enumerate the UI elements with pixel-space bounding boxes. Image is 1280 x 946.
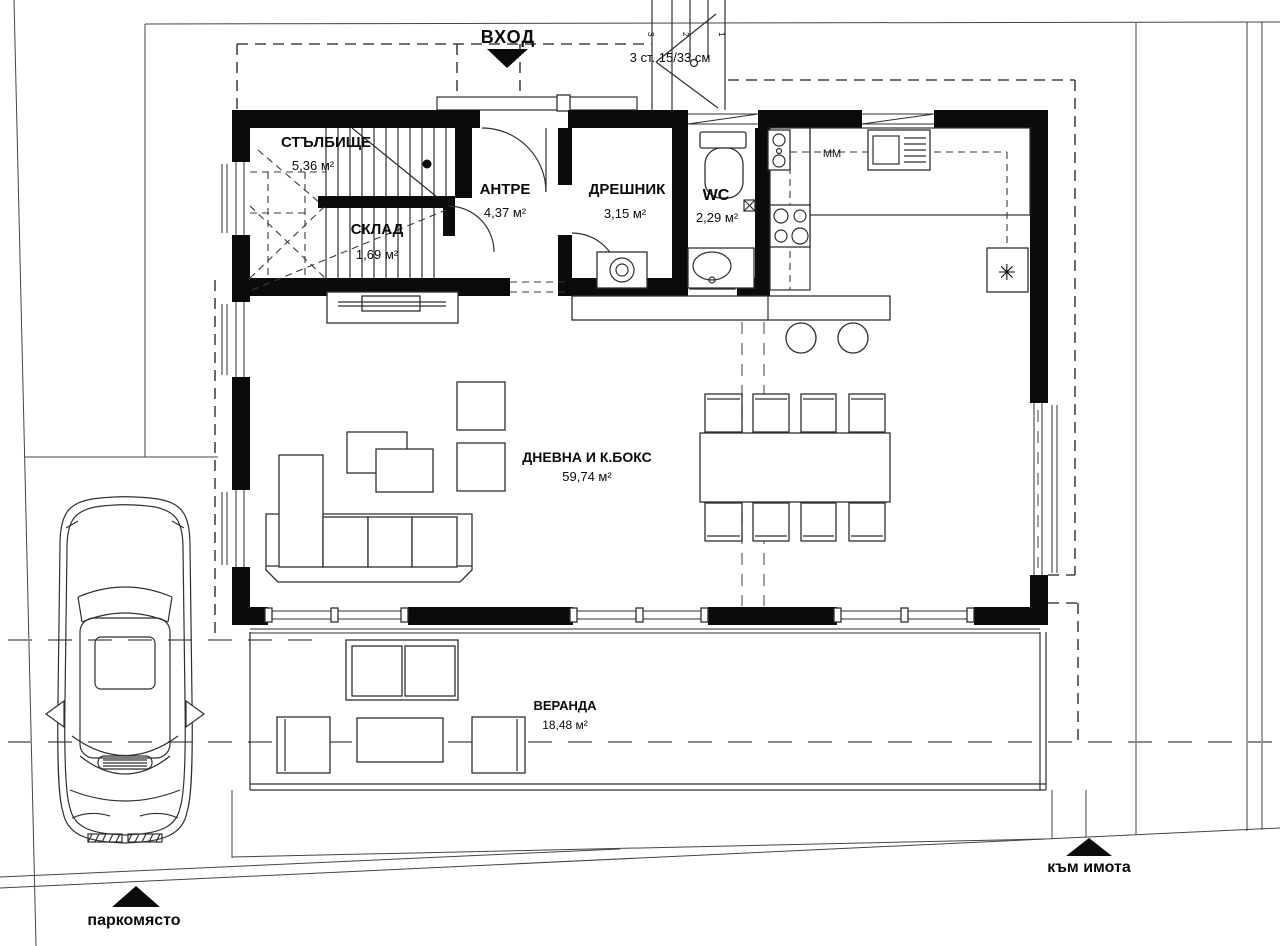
window-top-kitchen xyxy=(862,114,934,124)
wall-bottom-4 xyxy=(974,607,1048,625)
kitchen: ✳ xyxy=(572,128,1030,353)
porch-post xyxy=(557,95,570,111)
wall-bottom-3 xyxy=(708,607,837,625)
car-headlight-right xyxy=(140,813,178,818)
car xyxy=(46,497,204,843)
stair-landing-wall xyxy=(318,196,455,208)
wall-left-3 xyxy=(232,377,250,490)
room-label-veranda: ВЕРАНДА xyxy=(533,698,597,713)
setback-lines xyxy=(8,44,1272,742)
window-left-3 xyxy=(222,490,244,567)
room-label-closet: ДРЕШНИК xyxy=(589,181,666,198)
dining-chair xyxy=(849,503,885,541)
wall-bottom-1 xyxy=(232,607,268,625)
car-windshield-1 xyxy=(72,736,178,756)
dining-set xyxy=(700,394,890,541)
wall-hall-closet-bottom xyxy=(558,235,572,296)
room-area-staircase: 5,36 м² xyxy=(292,158,335,173)
room-label-wc: WC xyxy=(703,187,730,204)
window-bottom-2 xyxy=(570,608,708,622)
wall-right-1 xyxy=(1030,110,1048,403)
room-area-closet: 3,15 м² xyxy=(604,206,647,221)
entrance-arrow-icon xyxy=(487,49,528,68)
car-headlight-left xyxy=(72,813,110,818)
bar-stool xyxy=(786,323,816,353)
window-bottom-3 xyxy=(834,608,974,622)
veranda-armchair xyxy=(472,717,525,773)
parking-label: паркомясто xyxy=(87,912,180,929)
stair-door-jamb xyxy=(443,208,455,236)
room-area-hallway: 4,37 м² xyxy=(484,205,527,220)
appliance-mm-label: ММ xyxy=(823,148,841,160)
bar-stool xyxy=(838,323,868,353)
to-property-arrow-icon xyxy=(1066,838,1112,856)
fridge-symbol: ✳ xyxy=(998,260,1016,285)
car-sunroof xyxy=(95,637,155,689)
stair-dashed-guides xyxy=(250,150,446,290)
site-line-top xyxy=(145,22,1280,24)
toilet-tank xyxy=(700,132,746,148)
room-area-living: 59,74 м² xyxy=(562,469,612,484)
floor-plan-canvas: ✳ xyxy=(0,0,1280,946)
dining-chair xyxy=(705,503,742,541)
parking-arrow-icon xyxy=(112,886,160,907)
entrance-label: ВХОД xyxy=(481,27,535,47)
wall-top-1 xyxy=(232,110,480,128)
dining-chair xyxy=(801,394,836,432)
step-digit: 1 xyxy=(717,32,726,37)
pouf xyxy=(457,382,505,430)
wall-stair-hall xyxy=(455,128,472,198)
wall-bottom-2 xyxy=(408,607,573,625)
kitchen-peninsula xyxy=(572,296,890,320)
car-mirror-left xyxy=(46,701,64,727)
wall-top-2 xyxy=(568,110,688,128)
coffee-table xyxy=(376,449,433,492)
dining-chair xyxy=(849,394,885,432)
boiler-unit xyxy=(768,130,790,170)
vent-symbol xyxy=(744,200,755,211)
window-left-2 xyxy=(222,302,244,377)
window-top-wc xyxy=(688,114,758,124)
veranda-armchair xyxy=(277,717,330,773)
room-label-staircase: СТЪЛБИЩЕ xyxy=(281,134,371,151)
room-label-storage: СКЛАД xyxy=(351,221,404,238)
property-line-bottom xyxy=(0,828,1280,888)
car-hood-line xyxy=(70,790,180,801)
floor-plan-drawing: ✳ xyxy=(0,0,1280,946)
room-label-living: ДНЕВНА И К.БОКС xyxy=(522,449,651,465)
stair-direction-dot xyxy=(423,160,432,169)
stair-treads-lower xyxy=(326,208,434,278)
pouf xyxy=(457,443,505,491)
wall-closet-wc xyxy=(672,128,688,296)
dining-chair xyxy=(801,503,836,541)
tv-console xyxy=(327,292,458,323)
car-body-inner xyxy=(65,505,186,835)
steps-note: 3 ст. 15/33 см xyxy=(630,50,711,65)
veranda xyxy=(232,632,1086,858)
wall-hall-closet-top xyxy=(558,128,572,185)
window-left-1 xyxy=(222,162,244,235)
porch-slab xyxy=(437,97,637,110)
staircase xyxy=(250,128,446,290)
room-area-wc: 2,29 м² xyxy=(696,210,739,225)
veranda-table xyxy=(357,718,443,762)
to-property-label: към имота xyxy=(1047,859,1131,876)
closet-fixtures xyxy=(597,252,647,288)
wall-top-3 xyxy=(758,110,862,128)
step-digit: 3 xyxy=(646,32,655,37)
window-bottom-1 xyxy=(265,608,408,622)
car-rear-window-1 xyxy=(78,587,172,597)
patio-outline xyxy=(232,790,1086,858)
step-digit: 2 xyxy=(681,32,690,37)
fridge: ✳ xyxy=(987,248,1028,292)
exterior-steps-diagonal-2 xyxy=(656,62,718,108)
dining-chair xyxy=(753,503,789,541)
sofa xyxy=(266,455,472,582)
stove xyxy=(770,205,810,247)
room-area-veranda: 18,48 м² xyxy=(542,718,588,732)
window-right xyxy=(1034,403,1057,575)
wall-left-1 xyxy=(232,110,250,162)
dining-chair xyxy=(705,394,742,432)
car-mirror-right xyxy=(186,701,204,727)
car-windshield-2 xyxy=(80,756,170,774)
car-body xyxy=(58,497,193,843)
washing-machine xyxy=(597,252,647,288)
property-line-left xyxy=(14,0,36,946)
dining-chair xyxy=(753,394,789,432)
room-area-storage: 1,69 м² xyxy=(356,247,399,262)
property-lines xyxy=(0,0,1280,946)
dining-table xyxy=(700,433,890,502)
room-label-hallway: АНТРЕ xyxy=(480,181,531,198)
door-arcs xyxy=(448,128,619,280)
kitchen-sink xyxy=(868,130,930,170)
veranda-sofa xyxy=(346,640,458,700)
